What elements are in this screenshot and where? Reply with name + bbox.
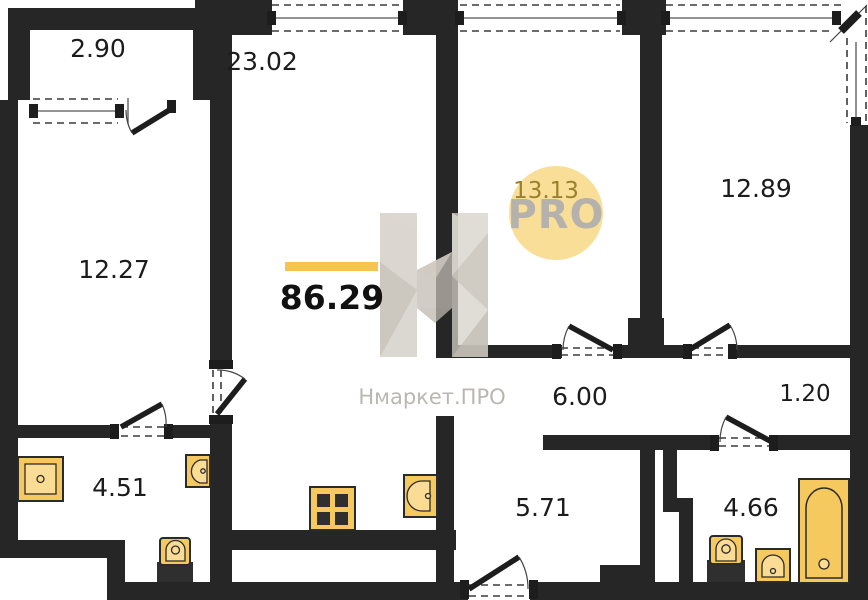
room-area-label-balcony: 2.90: [70, 34, 126, 63]
door-icon: [209, 360, 245, 424]
door-icon: [110, 404, 173, 439]
window-icon: [29, 99, 124, 123]
room-area-label-bedroom-middle: 13.13: [513, 178, 579, 204]
room-area-label-living: 23.02: [226, 47, 298, 76]
total-area-accent-bar: [285, 262, 378, 271]
door-icon: [683, 325, 737, 359]
window-icon: [661, 5, 842, 31]
room-area-label-bedroom-right: 12.89: [720, 174, 792, 203]
room-area-label-bathroom-left: 4.51: [92, 473, 148, 502]
door-icon: [552, 326, 622, 359]
room-area-label-bedroom-left: 12.27: [78, 255, 150, 284]
brand-h-icon: [380, 213, 488, 357]
stove-icon: [310, 487, 355, 530]
sink-icon: [756, 549, 790, 582]
room-area-label-hall: 5.71: [515, 493, 571, 522]
room-area-label-niche: 1.20: [779, 381, 830, 407]
window-icon: [267, 5, 407, 31]
watermark-brand-label: Нмаркет.ПРО: [358, 385, 505, 409]
floor-plan-page: PRO Нмаркет.ПРО 2.90 23.02 12.27 13.13 1…: [0, 0, 868, 600]
toilet-icon: [157, 538, 193, 582]
room-area-label-bathroom-right: 4.66: [723, 493, 779, 522]
door-icon: [710, 417, 778, 451]
balcony-door-icon: [126, 98, 176, 133]
bathtub-icon: [799, 479, 849, 583]
sink-icon: [186, 455, 210, 487]
shower-icon: [18, 457, 63, 501]
total-area-label: 86.29: [280, 278, 384, 317]
floor-plan: PRO Нмаркет.ПРО 2.90 23.02 12.27 13.13 1…: [0, 0, 868, 600]
kitchen-sink-icon: [404, 475, 437, 517]
toilet-icon: [707, 536, 745, 582]
entrance-door-icon: [460, 557, 538, 599]
room-area-label-corridor: 6.00: [552, 382, 608, 411]
window-icon: [455, 5, 626, 31]
